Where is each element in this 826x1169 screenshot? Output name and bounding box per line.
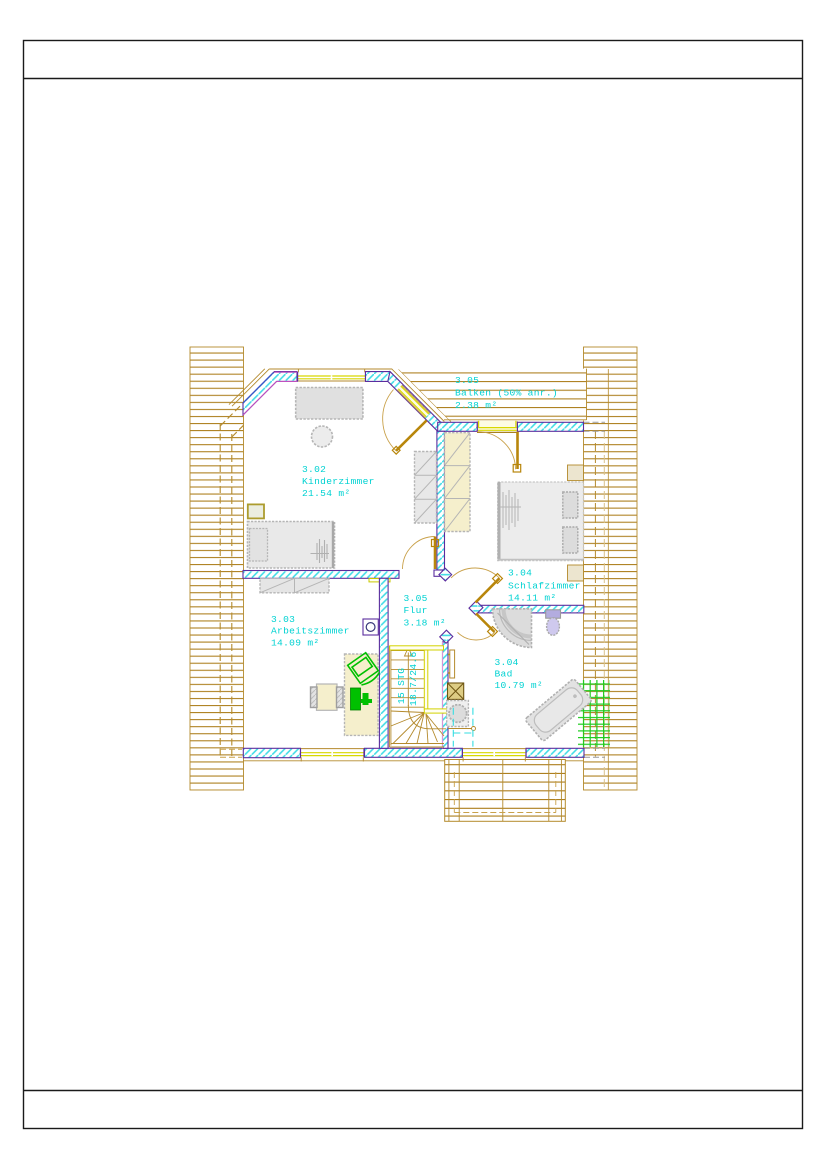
svg-text:Arbeitszimmer: Arbeitszimmer: [271, 626, 350, 637]
svg-text:Bad: Bad: [495, 669, 513, 680]
svg-text:18.7/24.6: 18.7/24.6: [408, 651, 419, 706]
svg-text:14.09 m²: 14.09 m²: [271, 638, 319, 649]
svg-text:Balken (50% anr.): Balken (50% anr.): [455, 388, 558, 399]
svg-text:2.38 m²: 2.38 m²: [455, 400, 497, 411]
svg-text:Flur: Flur: [404, 605, 428, 616]
svg-text:10.79 m²: 10.79 m²: [495, 680, 543, 691]
svg-text:15 STG: 15 STG: [396, 668, 407, 704]
svg-text:3.04: 3.04: [508, 568, 532, 579]
svg-text:3.18 m²: 3.18 m²: [404, 618, 446, 629]
svg-text:3.04: 3.04: [495, 657, 519, 668]
svg-text:Schlafzimmer: Schlafzimmer: [508, 581, 581, 592]
svg-text:21.54 m²: 21.54 m²: [302, 488, 350, 499]
svg-text:3.03: 3.03: [271, 614, 295, 625]
svg-text:3.02: 3.02: [302, 464, 326, 475]
svg-text:14.11 m²: 14.11 m²: [508, 593, 556, 604]
svg-text:3.05: 3.05: [404, 593, 428, 604]
svg-text:3.05: 3.05: [455, 375, 479, 386]
svg-text:Kinderzimmer: Kinderzimmer: [302, 476, 375, 487]
